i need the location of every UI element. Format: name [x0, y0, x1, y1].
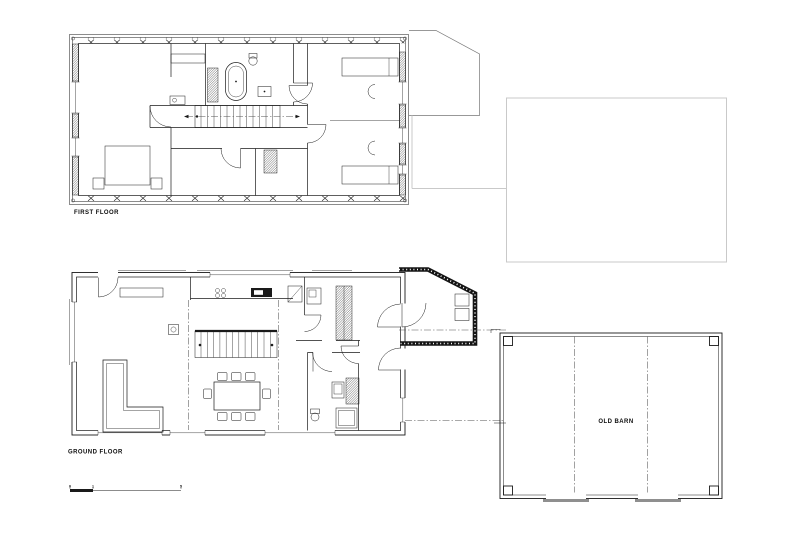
insulation-right — [400, 175, 406, 195]
boiler — [288, 286, 302, 302]
window — [170, 430, 205, 436]
window — [71, 138, 80, 156]
stair-arrow — [296, 115, 301, 118]
window — [399, 82, 408, 104]
door-swing — [221, 149, 241, 169]
bedroom-left — [93, 146, 162, 189]
window — [210, 272, 290, 278]
stud-band-bottom — [73, 196, 405, 202]
barn-inner-wall — [504, 337, 719, 496]
door-swing — [341, 346, 359, 364]
exterior-walls — [70, 35, 409, 205]
door-swing — [98, 272, 118, 297]
shower-tray — [336, 408, 357, 428]
plan-drawing: FIRST FLOOR — [0, 0, 800, 533]
wardrobe — [171, 54, 205, 63]
radiator — [264, 150, 277, 173]
bedroom-right — [289, 58, 400, 184]
door-swing — [305, 315, 322, 332]
sink — [251, 288, 272, 297]
staircase — [184, 106, 300, 128]
kitchen — [191, 286, 303, 302]
old-barn-plan: OLD BARN — [491, 330, 722, 503]
ground-floor-plan: GROUND FLOOR — [68, 270, 508, 456]
door-swing — [294, 83, 313, 102]
door-swing — [379, 348, 401, 370]
insulation-left — [73, 44, 79, 81]
porch-bench — [455, 309, 469, 321]
washbasin — [258, 87, 271, 97]
door-swing — [308, 125, 327, 144]
barn-post — [710, 337, 719, 346]
switch-box — [170, 96, 185, 105]
barn-outer-wall — [500, 333, 722, 499]
entrance-porch — [399, 270, 475, 344]
bathtub — [226, 63, 247, 101]
porch-roof-outline — [409, 31, 480, 116]
insulation-right — [400, 144, 406, 164]
dining-chairs — [204, 373, 271, 421]
armchair — [368, 141, 375, 155]
toilet — [249, 54, 257, 66]
insulation-left — [73, 114, 79, 137]
corner-sofa — [103, 360, 163, 432]
scale-bar-solid — [70, 489, 93, 492]
side-table — [169, 325, 179, 335]
door-swing — [150, 106, 171, 127]
landing — [150, 96, 277, 173]
wardrobe — [336, 286, 352, 340]
barn-post — [504, 337, 513, 346]
nightstand — [93, 178, 104, 189]
washing-machine — [307, 288, 321, 304]
porch-wall — [399, 270, 475, 344]
washbasin — [332, 382, 344, 398]
bed — [105, 146, 150, 185]
radiator — [346, 378, 359, 404]
armchair — [368, 85, 375, 99]
bathroom — [208, 54, 313, 103]
insulation-left — [73, 157, 79, 195]
sliding-door — [543, 499, 589, 502]
interior-walls — [150, 44, 308, 196]
staircase — [195, 331, 277, 358]
bed — [342, 58, 398, 76]
window — [399, 128, 408, 143]
dining-area — [204, 373, 271, 421]
sliding-door — [635, 499, 681, 502]
window — [399, 165, 408, 174]
stair-arrow — [184, 115, 189, 118]
living-room — [103, 288, 179, 432]
stud-band-top — [73, 38, 405, 44]
window — [71, 82, 80, 113]
window — [70, 299, 78, 365]
first-floor-label: FIRST FLOOR — [74, 210, 119, 216]
porch-bench — [455, 294, 469, 306]
door-swing — [378, 304, 401, 327]
floor-plan-sheet: FIRST FLOOR — [0, 0, 800, 533]
scale-bar: 0 1 5 — [69, 485, 182, 493]
window — [400, 398, 406, 422]
barn-post — [504, 486, 513, 495]
bathroom — [311, 346, 360, 428]
first-floor-plan: FIRST FLOOR — [70, 31, 727, 263]
toilet — [311, 409, 320, 421]
insulation-right — [400, 105, 406, 127]
old-barn-roof-outline — [507, 98, 727, 262]
utility-room — [305, 286, 353, 340]
barn-post — [710, 486, 719, 495]
ground-floor-label: GROUND FLOOR — [68, 450, 123, 456]
insulation-right — [400, 52, 406, 81]
right-wall-doors — [378, 304, 406, 371]
cooktop — [215, 288, 225, 297]
sideboard — [120, 288, 163, 297]
radiator — [208, 68, 219, 102]
door-swing — [313, 353, 333, 372]
window — [98, 430, 162, 436]
old-barn-label: OLD BARN — [598, 419, 633, 425]
interior-walls — [191, 277, 361, 431]
nightstand — [151, 178, 162, 189]
window — [265, 430, 335, 436]
bed — [342, 166, 398, 184]
dining-table — [214, 382, 260, 410]
